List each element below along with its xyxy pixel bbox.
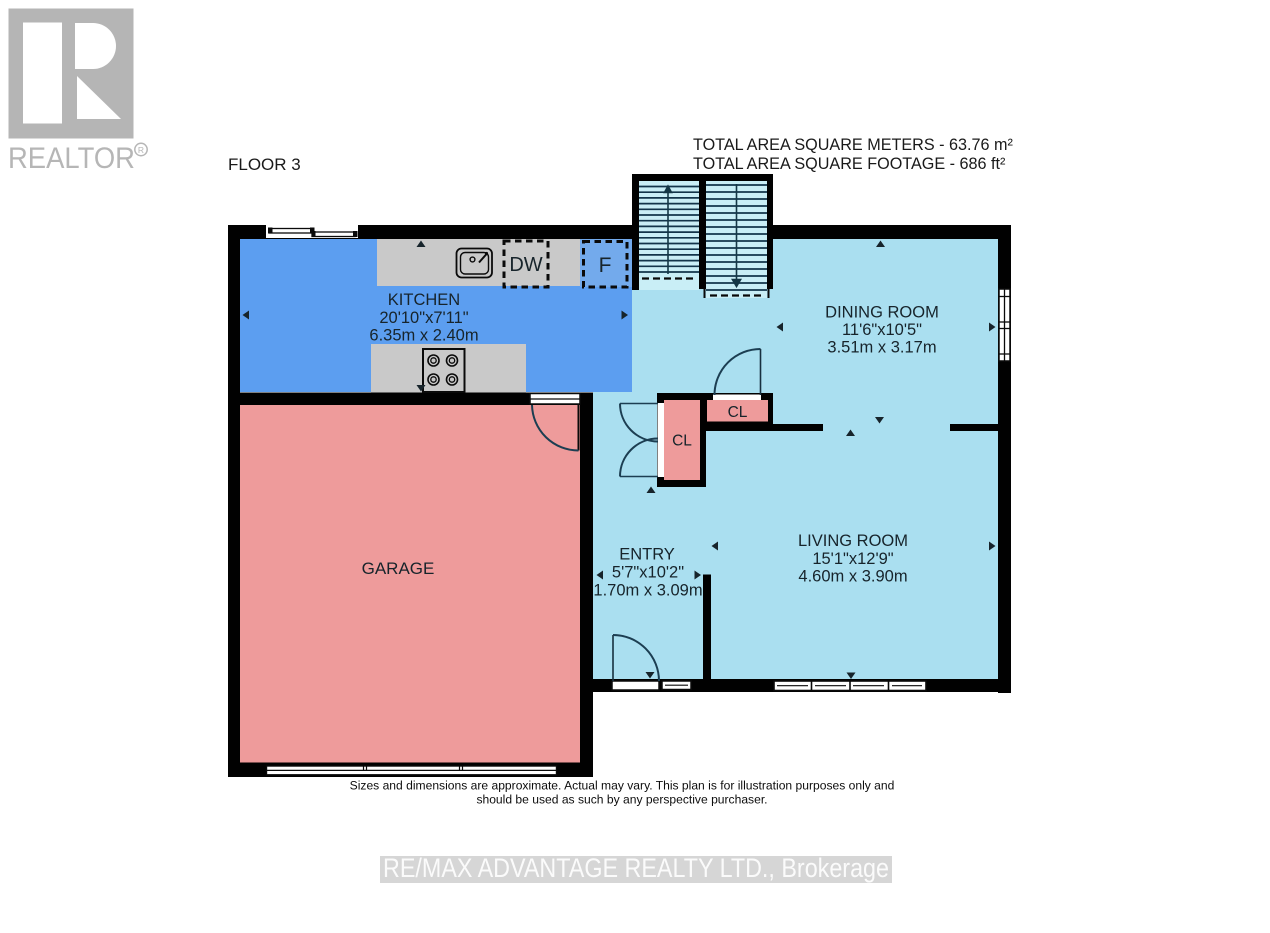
svg-text:should be used as such by any: should be used as such by any perspectiv… xyxy=(476,793,767,807)
svg-text:11'6"x10'5": 11'6"x10'5" xyxy=(842,321,922,339)
svg-text:KITCHEN: KITCHEN xyxy=(388,291,460,309)
svg-text:5'7"x10'2": 5'7"x10'2" xyxy=(612,564,684,582)
svg-text:15'1"x12'9": 15'1"x12'9" xyxy=(812,550,893,568)
svg-text:Sizes and dimensions are appro: Sizes and dimensions are approximate. Ac… xyxy=(350,779,895,793)
svg-text:CL: CL xyxy=(672,433,692,450)
svg-text:DINING ROOM: DINING ROOM xyxy=(825,304,939,322)
svg-text:ENTRY: ENTRY xyxy=(619,546,675,564)
svg-text:R: R xyxy=(138,145,144,155)
svg-text:REALTOR: REALTOR xyxy=(8,142,135,175)
svg-text:GARAGE: GARAGE xyxy=(362,559,435,578)
svg-text:4.60m x 3.90m: 4.60m x 3.90m xyxy=(798,568,907,586)
svg-text:TOTAL AREA SQUARE METERS - 63.: TOTAL AREA SQUARE METERS - 63.76 m² xyxy=(693,136,1014,154)
svg-text:F: F xyxy=(599,254,612,277)
svg-text:6.35m x 2.40m: 6.35m x 2.40m xyxy=(369,327,478,345)
svg-text:20'10"x7'11": 20'10"x7'11" xyxy=(379,309,468,327)
svg-text:DW: DW xyxy=(509,254,542,276)
svg-text:RE/MAX ADVANTAGE REALTY LTD.,: RE/MAX ADVANTAGE REALTY LTD., Brokerage xyxy=(383,853,889,883)
svg-text:1.70m x 3.09m: 1.70m x 3.09m xyxy=(593,582,702,600)
svg-text:3.51m x 3.17m: 3.51m x 3.17m xyxy=(827,339,936,357)
svg-text:LIVING ROOM: LIVING ROOM xyxy=(798,532,908,550)
svg-text:CL: CL xyxy=(728,404,748,421)
svg-text:TOTAL AREA SQUARE FOOTAGE - 68: TOTAL AREA SQUARE FOOTAGE - 686 ft² xyxy=(693,155,1006,173)
svg-text:FLOOR 3: FLOOR 3 xyxy=(228,155,301,174)
